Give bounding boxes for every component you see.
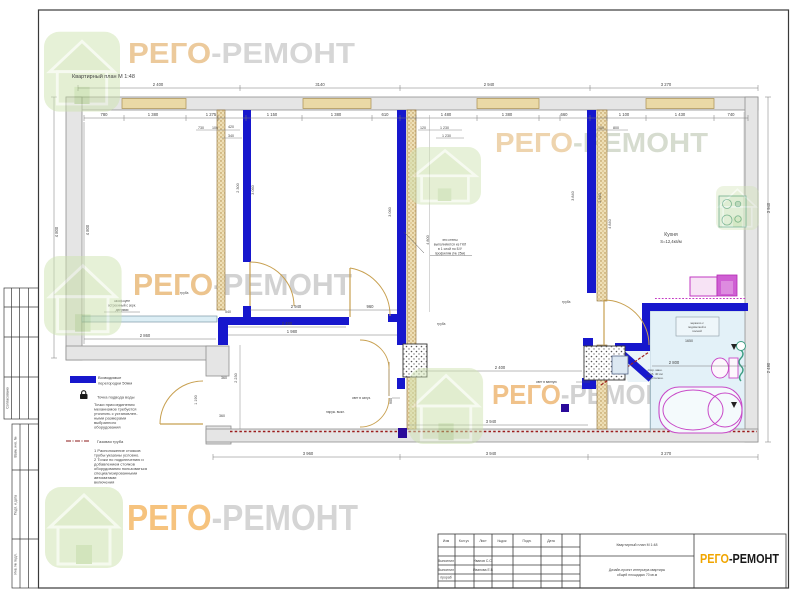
svg-text:Лист: Лист bbox=[479, 539, 487, 543]
svg-text:РЕГО-РЕМОНТ: РЕГО-РЕМОНТ bbox=[127, 497, 358, 538]
svg-text:800: 800 bbox=[613, 126, 619, 130]
svg-text:730: 730 bbox=[198, 126, 204, 130]
svg-text:2 940: 2 940 bbox=[484, 82, 495, 87]
svg-text:3 940: 3 940 bbox=[766, 202, 771, 213]
svg-text:3 270: 3 270 bbox=[661, 451, 672, 456]
svg-text:4 800: 4 800 bbox=[85, 224, 90, 235]
svg-text:360: 360 bbox=[219, 414, 225, 418]
svg-text:Подп. и дата: Подп. и дата bbox=[14, 495, 18, 515]
svg-text:2 460: 2 460 bbox=[282, 321, 293, 326]
svg-text:оборудования: оборудования bbox=[94, 425, 121, 430]
svg-text:1650: 1650 bbox=[685, 339, 693, 343]
svg-text:2 490: 2 490 bbox=[766, 362, 771, 373]
svg-text:3 060: 3 060 bbox=[388, 207, 392, 217]
svg-text:340: 340 bbox=[228, 134, 234, 138]
svg-text:1 980: 1 980 bbox=[287, 329, 298, 334]
svg-text:Дизайн-проект интерьера кварти: Дизайн-проект интерьера квартиры bbox=[609, 568, 666, 572]
svg-text:наруж. выкл.: наруж. выкл. bbox=[326, 410, 345, 414]
svg-text:1 150: 1 150 bbox=[267, 112, 278, 117]
svg-text:выполняются из ГКЛ: выполняются из ГКЛ bbox=[434, 243, 466, 247]
svg-text:S=12,4кв/м: S=12,4кв/м bbox=[660, 239, 682, 244]
svg-text:900: 900 bbox=[389, 398, 393, 404]
svg-text:Иванов С.С.: Иванов С.С. bbox=[473, 559, 492, 563]
svg-text:Инв. № подл.: Инв. № подл. bbox=[14, 553, 18, 574]
svg-text:Изм: Изм bbox=[443, 539, 450, 543]
svg-text:1 100: 1 100 bbox=[619, 112, 630, 117]
svg-text:Выполнил: Выполнил bbox=[438, 559, 454, 563]
svg-text:свет в сануз.: свет в сануз. bbox=[352, 396, 371, 400]
svg-text:1 380: 1 380 bbox=[502, 112, 513, 117]
svg-text:3140: 3140 bbox=[315, 82, 325, 87]
svg-text:полкой: полкой bbox=[692, 329, 702, 333]
svg-text:2 800: 2 800 bbox=[669, 360, 680, 365]
svg-text:960: 960 bbox=[367, 304, 375, 309]
svg-text:Кухня: Кухня bbox=[664, 232, 678, 238]
svg-text:540: 540 bbox=[225, 310, 231, 314]
svg-text:420: 420 bbox=[228, 125, 234, 129]
svg-text:3 960: 3 960 bbox=[303, 451, 314, 456]
svg-text:2 860: 2 860 bbox=[140, 333, 151, 338]
svg-text:РЕГО-РЕМОНТ: РЕГО-РЕМОНТ bbox=[133, 267, 352, 302]
svg-text:1 380: 1 380 bbox=[148, 112, 159, 117]
svg-text:1 230: 1 230 bbox=[442, 134, 451, 138]
svg-text:1 190: 1 190 bbox=[194, 395, 198, 405]
svg-text:1 480: 1 480 bbox=[441, 112, 452, 117]
svg-text:2 400: 2 400 bbox=[153, 82, 164, 87]
svg-text:РЕГО-РЕМОНТ: РЕГО-РЕМОНТ bbox=[128, 38, 355, 70]
svg-text:Подп.: Подп. bbox=[522, 539, 531, 543]
svg-text:общей площадью 70 кв.м: общей площадью 70 кв.м bbox=[617, 573, 658, 577]
svg-text:4 840: 4 840 bbox=[608, 219, 612, 229]
svg-text:100: 100 bbox=[212, 126, 218, 130]
svg-text:труба: труба bbox=[180, 291, 189, 295]
svg-text:740: 740 bbox=[728, 112, 736, 117]
svg-text:под столеш.: под столеш. bbox=[647, 376, 664, 380]
svg-text:1 230: 1 230 bbox=[440, 126, 449, 130]
svg-text:Газовая труба: Газовая труба bbox=[97, 439, 124, 444]
svg-text:1 430: 1 430 bbox=[675, 112, 686, 117]
svg-text:Кол.уч: Кол.уч bbox=[459, 539, 469, 543]
svg-text:профилям (№ 25м): профилям (№ 25м) bbox=[435, 252, 465, 256]
svg-text:Выполнил: Выполнил bbox=[438, 568, 454, 572]
svg-text:2 230: 2 230 bbox=[234, 373, 238, 383]
svg-text:1 275: 1 275 bbox=[206, 112, 217, 117]
svg-text:Дата: Дата bbox=[547, 539, 555, 543]
svg-text:2 400: 2 400 bbox=[495, 365, 506, 370]
svg-text:Взам. инв. №: Взам. инв. № bbox=[14, 436, 18, 457]
svg-text:Иванова Е.В: Иванова Е.В bbox=[473, 568, 494, 572]
svg-text:2 940: 2 940 bbox=[291, 304, 302, 309]
svg-text:Точка подвода воды: Точка подвода воды bbox=[97, 395, 135, 400]
svg-text:1 380: 1 380 bbox=[331, 112, 342, 117]
svg-text:прораб: прораб bbox=[440, 576, 451, 580]
svg-text:100: 100 bbox=[598, 126, 604, 130]
svg-text:3 840: 3 840 bbox=[571, 191, 575, 201]
svg-text:660: 660 bbox=[561, 112, 569, 117]
svg-text:3 940: 3 940 bbox=[486, 419, 497, 424]
svg-text:3 270: 3 270 bbox=[661, 82, 672, 87]
svg-text:Квартирный план М 1:48: Квартирный план М 1:48 bbox=[616, 543, 657, 547]
svg-text:4 800: 4 800 bbox=[54, 226, 59, 237]
svg-text:360: 360 bbox=[221, 376, 227, 380]
svg-text:труба: труба bbox=[437, 322, 446, 326]
svg-text:эти стены: эти стены bbox=[442, 238, 458, 242]
svg-text:120: 120 bbox=[420, 126, 426, 130]
svg-text:Квартирный план М 1:48: Квартирный план М 1:48 bbox=[72, 73, 135, 80]
svg-text:в 1 слой по Б/У: в 1 слой по Б/У bbox=[438, 247, 463, 251]
svg-text:780: 780 bbox=[101, 112, 109, 117]
svg-text:2 940: 2 940 bbox=[598, 193, 602, 203]
svg-text:3 940: 3 940 bbox=[486, 451, 497, 456]
svg-text:включения: включения bbox=[94, 480, 114, 485]
svg-text:№док: №док bbox=[498, 539, 508, 543]
svg-text:перегородки 50мм: перегородки 50мм bbox=[98, 381, 132, 386]
svg-text:610: 610 bbox=[382, 112, 390, 117]
svg-text:3 060: 3 060 bbox=[251, 185, 255, 195]
svg-text:труба: труба bbox=[562, 300, 571, 304]
svg-text:РЕГО-РЕМОНТ: РЕГО-РЕМОНТ bbox=[700, 552, 779, 566]
svg-text:Возводимые: Возводимые bbox=[98, 375, 122, 380]
svg-text:свет в ванную: свет в ванную bbox=[536, 380, 557, 384]
svg-text:2 300: 2 300 bbox=[236, 183, 240, 193]
svg-text:Согласовано: Согласовано bbox=[6, 387, 10, 409]
